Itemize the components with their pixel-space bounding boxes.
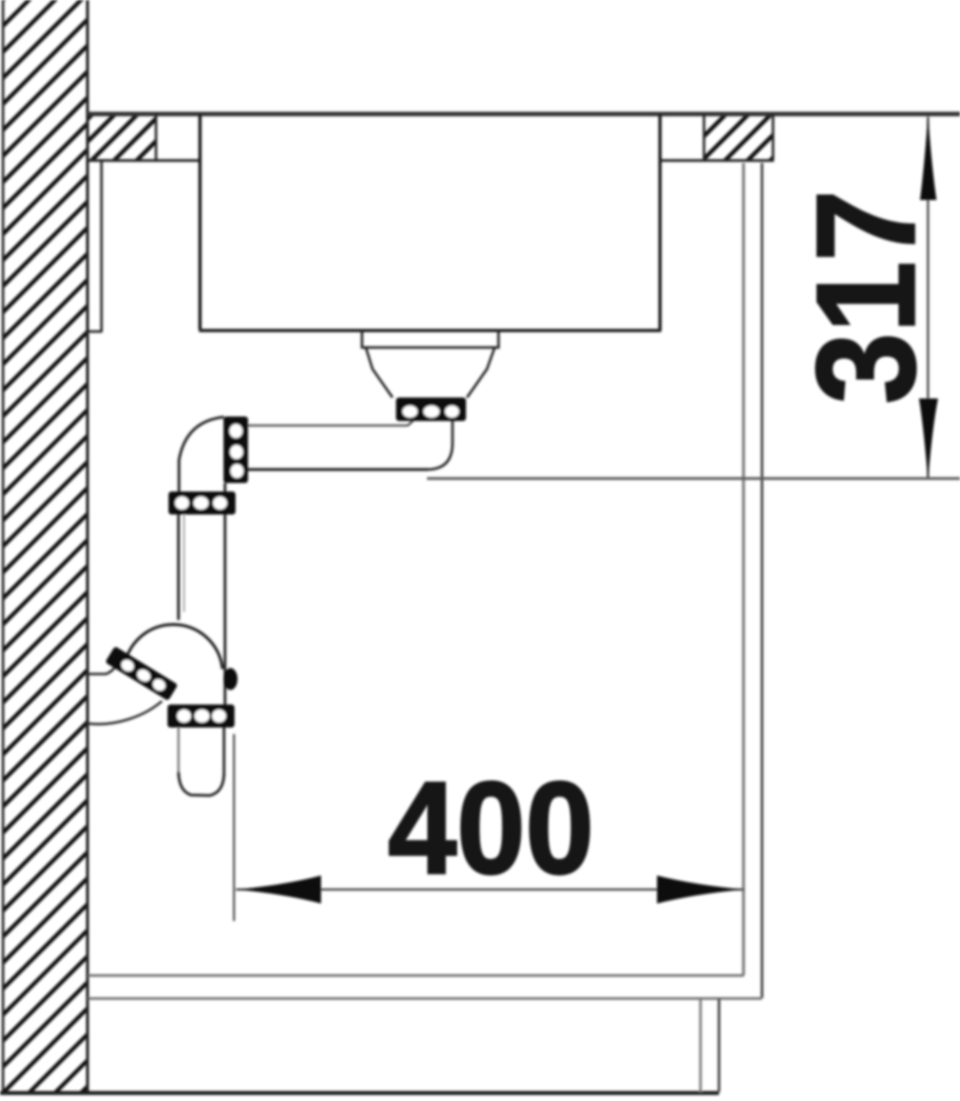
- svg-text:317: 317: [787, 190, 944, 404]
- svg-text:400: 400: [388, 754, 594, 901]
